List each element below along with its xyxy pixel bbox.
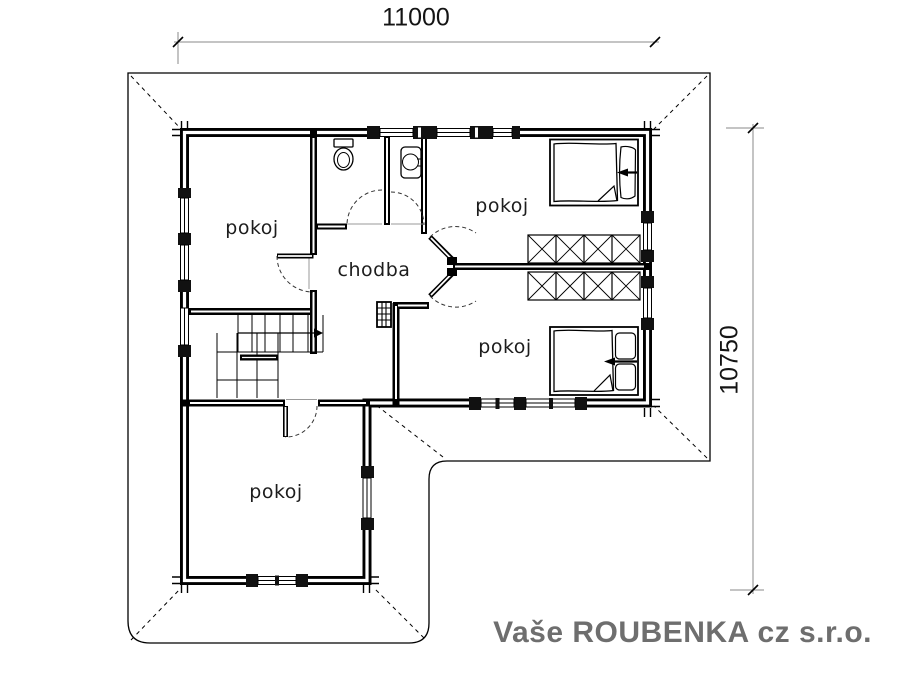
window-left-wing-right-wall	[361, 466, 374, 530]
room-label-pokoj-top-right: pokoj	[475, 195, 528, 217]
room-label-pokoj-bottom: pokoj	[249, 481, 302, 503]
dimension-right-label: 10750	[716, 325, 745, 395]
room-label-pokoj-top-left: pokoj	[225, 217, 278, 239]
dimension-top-label: 11000	[382, 4, 450, 33]
room-label-chodba: chodba	[338, 259, 411, 281]
floor-plan-page: 11000 10750 pokoj pokoj chodba pokoj pok…	[0, 0, 900, 675]
company-logo-text: Vaše ROUBENKA cz s.r.o.	[493, 616, 872, 650]
door-hinge-block	[447, 257, 457, 265]
room-label-pokoj-bottom-right: pokoj	[478, 336, 531, 358]
floor-plan-drawing	[0, 0, 900, 675]
window-left-wing-bottom-wall	[246, 574, 308, 587]
stove-chimney	[377, 302, 391, 327]
door-hinge-block	[447, 268, 457, 276]
window-right-wing-bottom-wall	[469, 397, 587, 410]
